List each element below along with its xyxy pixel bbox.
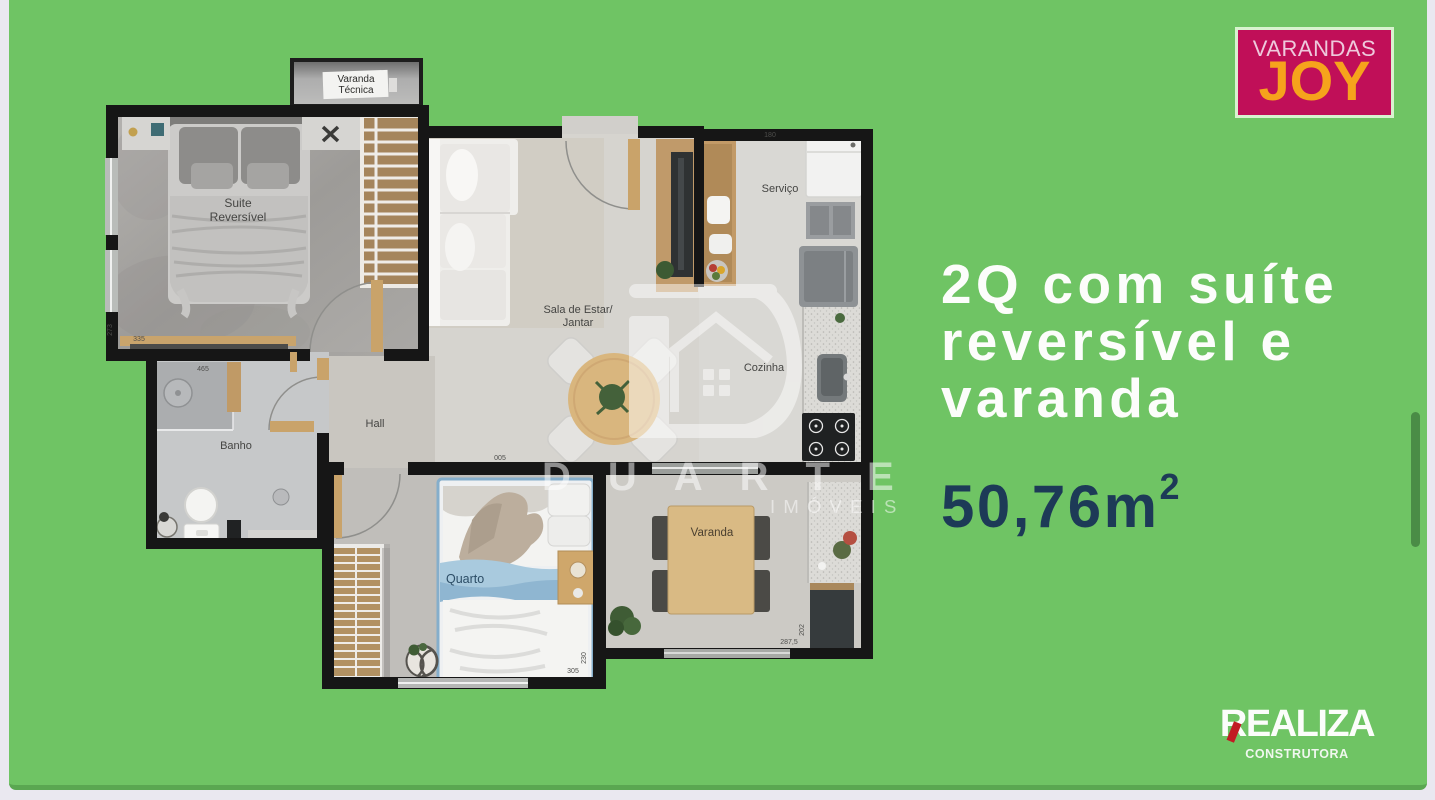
svg-text:IMÓVEIS: IMÓVEIS xyxy=(770,496,905,517)
svg-text:Varanda: Varanda xyxy=(337,74,375,85)
svg-text:180: 180 xyxy=(764,132,776,139)
svg-text:465: 465 xyxy=(197,366,209,373)
svg-text:Reversível: Reversível xyxy=(210,210,267,224)
svg-text:DUARTE: DUARTE xyxy=(542,455,931,499)
svg-text:Jantar: Jantar xyxy=(563,317,594,329)
svg-text:Sala de Estar/: Sala de Estar/ xyxy=(543,304,613,316)
svg-text:202: 202 xyxy=(799,624,806,636)
svg-text:287,5: 287,5 xyxy=(780,639,798,646)
svg-text:Varanda: Varanda xyxy=(691,527,734,539)
svg-text:Hall: Hall xyxy=(366,418,385,430)
svg-text:335: 335 xyxy=(133,336,145,343)
svg-text:Cozinha: Cozinha xyxy=(744,362,785,374)
svg-text:Técnica: Técnica xyxy=(338,85,373,96)
svg-text:005: 005 xyxy=(494,455,506,462)
svg-text:230: 230 xyxy=(581,652,588,664)
svg-text:Quarto: Quarto xyxy=(446,572,484,586)
svg-text:Suite: Suite xyxy=(224,196,252,210)
svg-text:Serviço: Serviço xyxy=(762,183,799,195)
svg-text:273: 273 xyxy=(107,324,114,336)
svg-text:Banho: Banho xyxy=(220,440,252,452)
svg-text:305: 305 xyxy=(567,668,579,675)
